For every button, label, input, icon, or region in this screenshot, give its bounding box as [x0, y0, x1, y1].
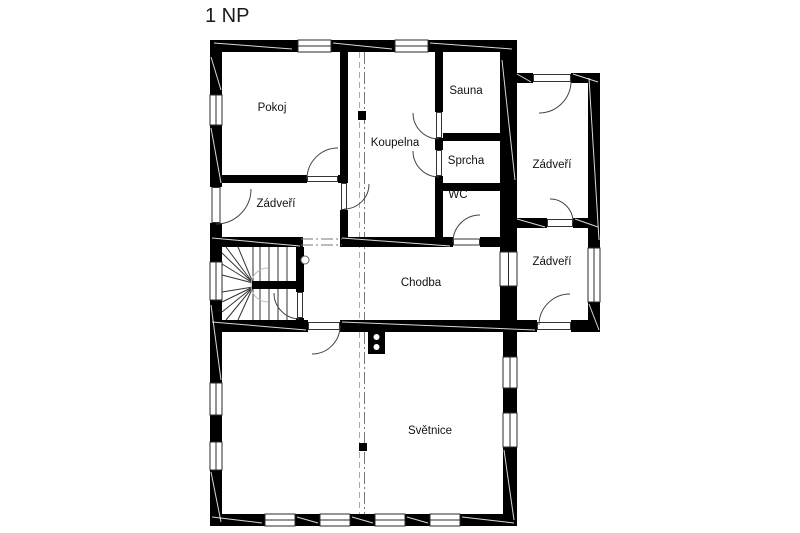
- room-label-zadveri-lower-right: Zádveří: [533, 256, 573, 268]
- door-svetnice: [308, 320, 340, 354]
- window: [298, 40, 331, 52]
- stair-mid-wall: [252, 281, 296, 289]
- window: [210, 442, 222, 470]
- room-label-zadveri-left: Zádveří: [257, 198, 297, 210]
- room-label-svetnice: Světnice: [408, 425, 452, 437]
- floor-plan-canvas: 1 NP: [0, 0, 800, 533]
- window: [503, 357, 517, 388]
- door-wc: [453, 215, 480, 247]
- room-label-wc: WC: [448, 189, 467, 201]
- door-entry-annex-top: [533, 73, 571, 113]
- room-label-sprcha: Sprcha: [448, 155, 485, 167]
- floor-marker-icon: [301, 256, 309, 264]
- window: [375, 514, 405, 526]
- room-label-zadveri-upper-right: Zádveří: [533, 159, 573, 171]
- window: [395, 40, 428, 52]
- window: [210, 262, 222, 300]
- floor-plan-page: 1 NP: [0, 0, 800, 533]
- window: [210, 95, 222, 125]
- door-entry-annex-bottom: [537, 294, 571, 332]
- window: [210, 383, 222, 415]
- room-label-pokoj: Pokoj: [258, 102, 287, 114]
- room-label-sauna: Sauna: [449, 85, 483, 97]
- door-entry-left: [210, 187, 251, 224]
- staircase: [222, 247, 296, 320]
- window: [320, 514, 350, 526]
- section-line: [358, 52, 367, 514]
- stove-icon: [368, 330, 385, 354]
- room-label-chodba: Chodba: [401, 277, 442, 289]
- door-sprcha: [413, 150, 443, 177]
- door-annex-divider: [547, 199, 573, 228]
- interior-opening: [500, 252, 517, 286]
- window: [430, 514, 460, 526]
- door-pokoj: [307, 148, 338, 183]
- room-label-koupelna: Koupelna: [371, 137, 420, 149]
- page-title: 1 NP: [205, 5, 249, 27]
- window: [588, 248, 600, 302]
- doors: [210, 73, 573, 354]
- window: [265, 514, 295, 526]
- window: [503, 413, 517, 447]
- open-passage: [301, 237, 342, 247]
- door-sauna: [413, 112, 443, 139]
